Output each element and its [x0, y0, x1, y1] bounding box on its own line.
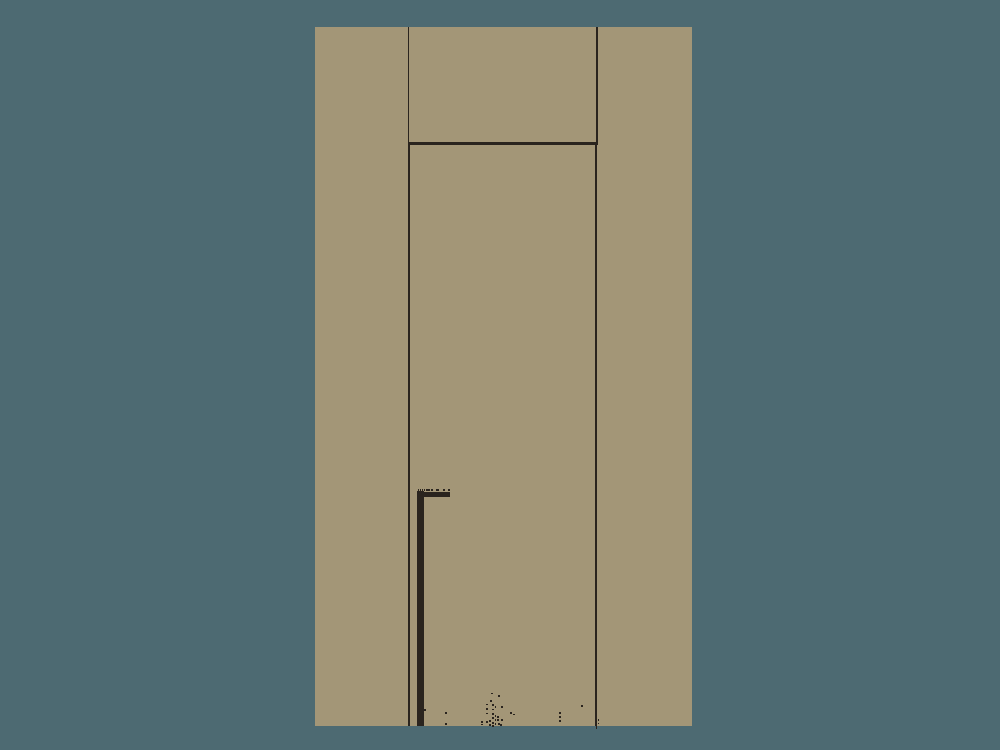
pipe-serration-tick: [436, 489, 439, 492]
pipe-serration-tick: [420, 489, 421, 492]
right-edge-tick: [595, 723, 596, 724]
ground-speckle: [486, 713, 488, 715]
transom-left-frame-line: [408, 27, 410, 143]
ground-speckle: [489, 720, 491, 722]
pipe-arm: [417, 492, 450, 498]
pipe-serration-tick: [429, 489, 430, 492]
ground-speckle: [486, 704, 488, 706]
ground-speckle: [486, 708, 488, 710]
ground-speckle: [492, 717, 494, 719]
ground-speckle: [495, 706, 497, 708]
pipe-notch: [424, 709, 426, 711]
ground-speckle: [510, 712, 512, 714]
ground-speckle: [559, 716, 561, 718]
ground-speckle: [481, 724, 483, 726]
ground-speckle: [513, 714, 515, 716]
ground-speckle: [445, 723, 447, 725]
pipe-serration-tick: [418, 489, 419, 492]
door-leaf-left-edge: [408, 145, 410, 726]
door-right-edge-tip: [596, 726, 597, 729]
right-edge-tick: [595, 712, 596, 714]
pipe-serration-tick: [431, 489, 433, 492]
ground-speckle: [492, 713, 494, 715]
right-edge-tick: [595, 664, 596, 666]
right-edge-tick: [595, 668, 596, 670]
ground-speckle: [498, 695, 500, 697]
ground-speckle: [501, 719, 503, 721]
ground-speckle: [500, 724, 502, 726]
ground-speckle: [491, 693, 493, 695]
ground-speckle: [559, 720, 561, 722]
right-edge-tick: [595, 716, 596, 717]
transom-right-frame-line: [596, 27, 598, 143]
ground-speckle: [492, 725, 494, 727]
door-header-line: [408, 142, 598, 145]
ground-speckle: [497, 716, 499, 718]
ground-speckle: [481, 721, 483, 723]
ground-speckle: [559, 712, 561, 714]
ground-speckle: [495, 723, 497, 725]
ground-speckle: [497, 719, 499, 721]
ground-speckle: [489, 724, 491, 726]
ground-speckle: [501, 706, 503, 708]
right-edge-tick: [595, 719, 596, 721]
ground-speckle: [486, 721, 488, 723]
ground-speckle: [445, 712, 447, 714]
pipe-serration-tick: [443, 489, 445, 492]
right-edge-tick: [598, 723, 599, 724]
scene-canvas: [0, 0, 1000, 750]
ground-speckle: [490, 700, 492, 702]
right-edge-tick: [598, 719, 599, 721]
wall-panel: [315, 27, 692, 726]
pipe-serration-tick: [422, 489, 423, 492]
pipe-vertical: [417, 491, 423, 726]
ground-speckle: [495, 719, 497, 721]
door-leaf-right-edge: [595, 145, 598, 726]
ground-speckle: [492, 722, 494, 724]
ground-speckle: [492, 704, 494, 706]
pipe-serration-tick: [448, 489, 450, 492]
ground-speckle: [492, 709, 494, 711]
ground-speckle: [581, 705, 583, 707]
ground-speckle: [495, 715, 497, 717]
